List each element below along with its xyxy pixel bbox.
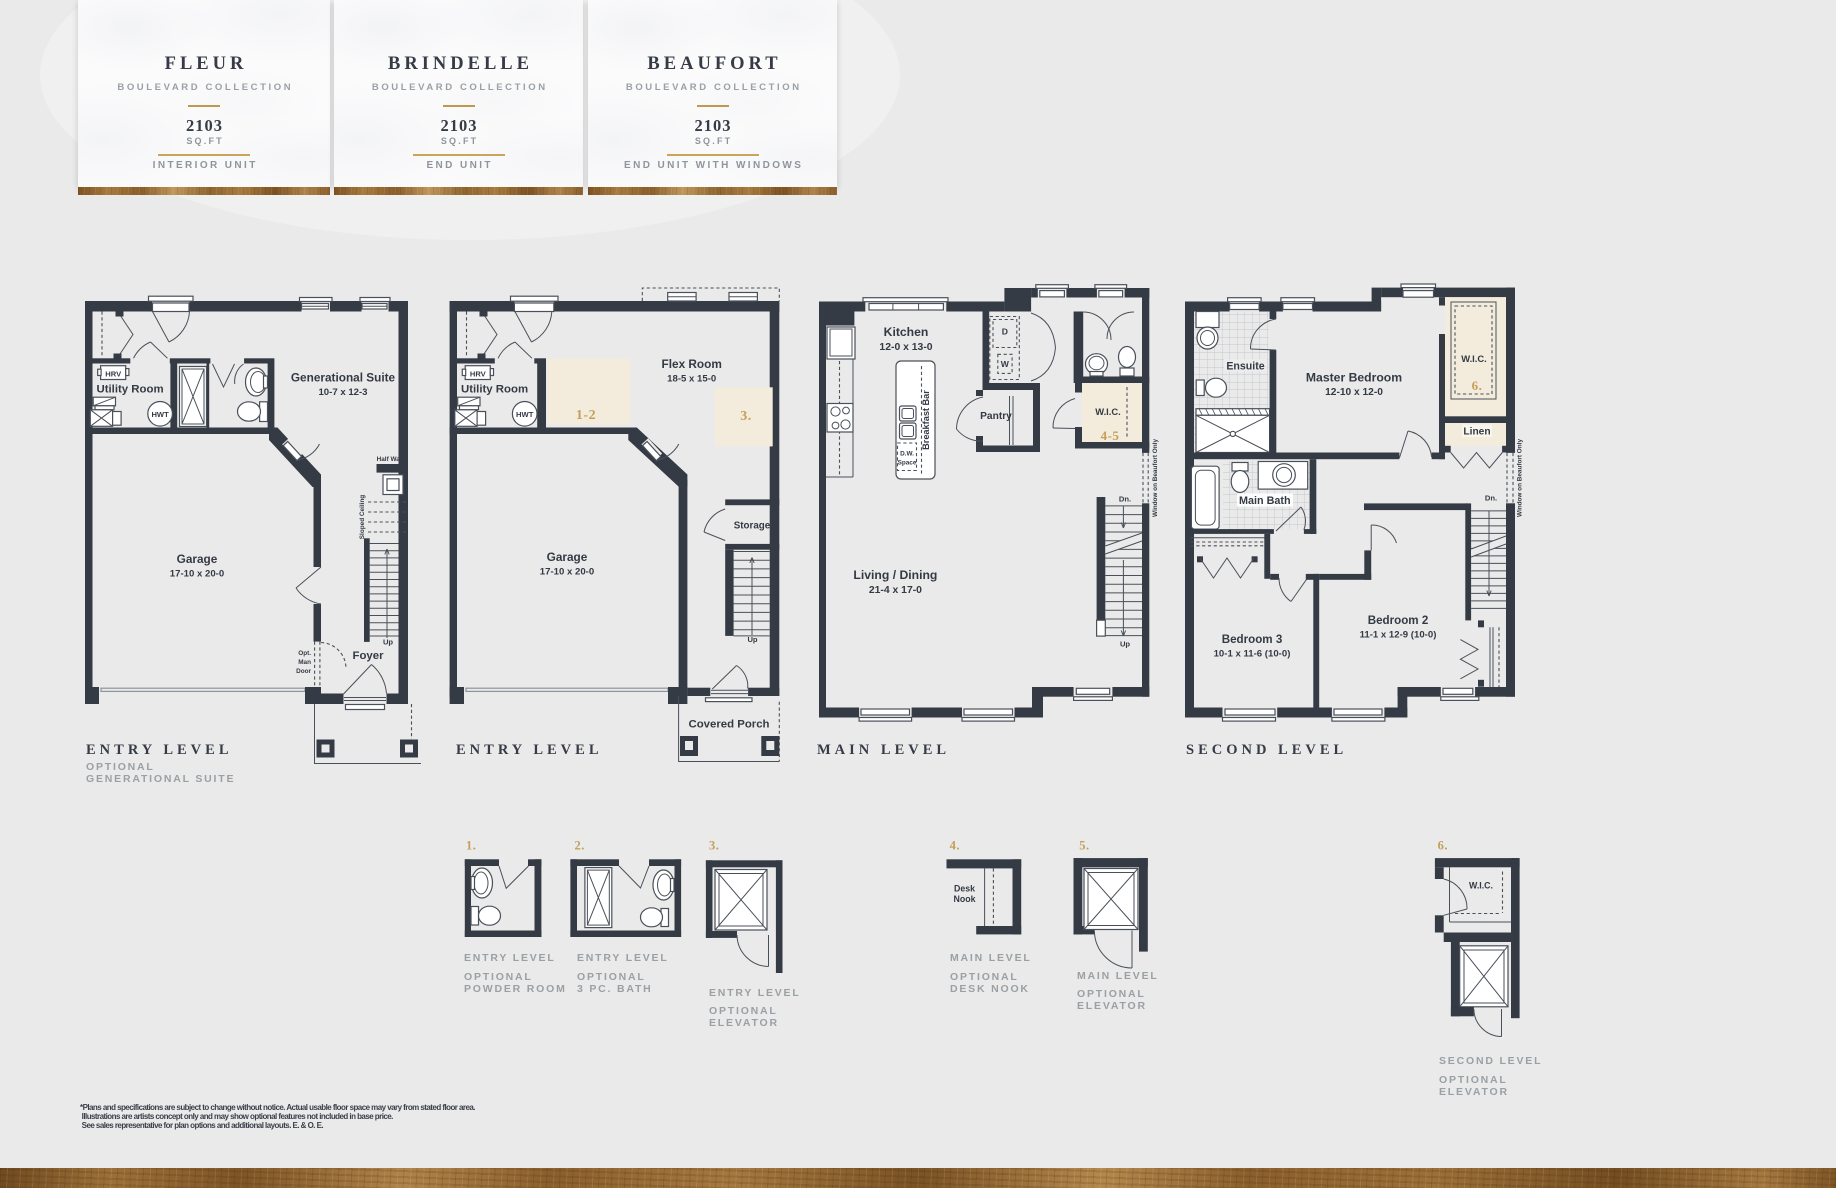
- svg-text:Man: Man: [298, 659, 311, 666]
- svg-text:Main Bath: Main Bath: [1239, 495, 1291, 507]
- svg-text:Living / Dining: Living / Dining: [853, 568, 937, 582]
- svg-text:18-5 x 15-0: 18-5 x 15-0: [667, 373, 716, 384]
- svg-text:4.: 4.: [950, 839, 960, 853]
- svg-text:11-1 x 12-9 (10-0): 11-1 x 12-9 (10-0): [1360, 630, 1437, 641]
- svg-text:Foyer: Foyer: [352, 650, 384, 662]
- svg-text:Ensuite: Ensuite: [1226, 361, 1264, 373]
- svg-text:W.I.C.: W.I.C.: [1461, 353, 1487, 364]
- svg-text:Covered Porch: Covered Porch: [688, 719, 769, 731]
- svg-text:10-1 x 11-6 (10-0): 10-1 x 11-6 (10-0): [1214, 649, 1291, 660]
- svg-text:5.: 5.: [1079, 839, 1089, 853]
- svg-text:1.: 1.: [466, 839, 476, 853]
- svg-text:12-10 x 12-0: 12-10 x 12-0: [1325, 387, 1383, 398]
- svg-text:Nook: Nook: [954, 894, 976, 904]
- svg-text:Pantry: Pantry: [980, 411, 1012, 422]
- svg-text:Half Wall: Half Wall: [377, 456, 404, 463]
- svg-text:D.W.: D.W.: [900, 451, 914, 458]
- svg-text:HRV: HRV: [105, 370, 122, 379]
- svg-text:Up: Up: [383, 638, 393, 647]
- svg-text:Master Bedroom: Master Bedroom: [1306, 371, 1402, 385]
- svg-text:Flex Room: Flex Room: [662, 357, 722, 371]
- svg-text:Bedroom 3: Bedroom 3: [1222, 633, 1283, 646]
- svg-text:Window on Beaufort Only: Window on Beaufort Only: [1152, 439, 1159, 517]
- svg-text:Bedroom 2: Bedroom 2: [1368, 614, 1429, 627]
- svg-text:6.: 6.: [1438, 839, 1448, 853]
- svg-text:W.I.C.: W.I.C.: [1095, 406, 1121, 417]
- svg-text:1-2: 1-2: [576, 408, 596, 423]
- svg-text:Up: Up: [1120, 640, 1130, 649]
- svg-text:17-10 x 20-0: 17-10 x 20-0: [170, 569, 224, 580]
- svg-text:Window on Beaufort Only: Window on Beaufort Only: [1517, 439, 1524, 517]
- svg-text:17-10 x 20-0: 17-10 x 20-0: [540, 567, 594, 578]
- svg-text:6.: 6.: [1472, 378, 1483, 393]
- svg-text:Linen: Linen: [1463, 427, 1490, 438]
- svg-text:Space: Space: [898, 460, 917, 467]
- svg-text:Opt.: Opt.: [298, 650, 311, 657]
- svg-text:Dn.: Dn.: [1485, 494, 1497, 503]
- svg-text:Garage: Garage: [547, 550, 588, 564]
- svg-text:Utility Room: Utility Room: [461, 384, 528, 396]
- svg-text:Dn.: Dn.: [1119, 495, 1131, 504]
- svg-text:Utility Room: Utility Room: [97, 384, 164, 396]
- svg-text:10-7 x 12-3: 10-7 x 12-3: [318, 387, 367, 398]
- svg-text:3.: 3.: [740, 409, 752, 424]
- svg-text:Up: Up: [747, 635, 757, 644]
- svg-text:HWT: HWT: [516, 410, 534, 419]
- svg-text:12-0 x 13-0: 12-0 x 13-0: [879, 342, 932, 353]
- svg-text:HRV: HRV: [470, 370, 487, 379]
- svg-text:W: W: [1001, 359, 1010, 369]
- svg-text:4-5: 4-5: [1101, 428, 1120, 443]
- svg-text:2.: 2.: [575, 839, 585, 853]
- svg-text:Door: Door: [296, 668, 311, 675]
- svg-text:HWT: HWT: [151, 410, 169, 419]
- svg-text:3.: 3.: [709, 839, 719, 853]
- svg-text:Kitchen: Kitchen: [884, 325, 929, 339]
- svg-text:21-4 x 17-0: 21-4 x 17-0: [869, 585, 922, 596]
- svg-text:Sloped Ceiling: Sloped Ceiling: [359, 495, 366, 539]
- svg-text:Generational Suite: Generational Suite: [291, 371, 396, 385]
- svg-text:Breakfast Bar: Breakfast Bar: [921, 390, 931, 450]
- svg-text:W.I.C.: W.I.C.: [1469, 881, 1493, 891]
- svg-text:Garage: Garage: [177, 552, 218, 566]
- svg-text:Desk: Desk: [954, 884, 975, 894]
- svg-text:D: D: [1002, 327, 1008, 337]
- svg-text:Storage: Storage: [734, 521, 771, 532]
